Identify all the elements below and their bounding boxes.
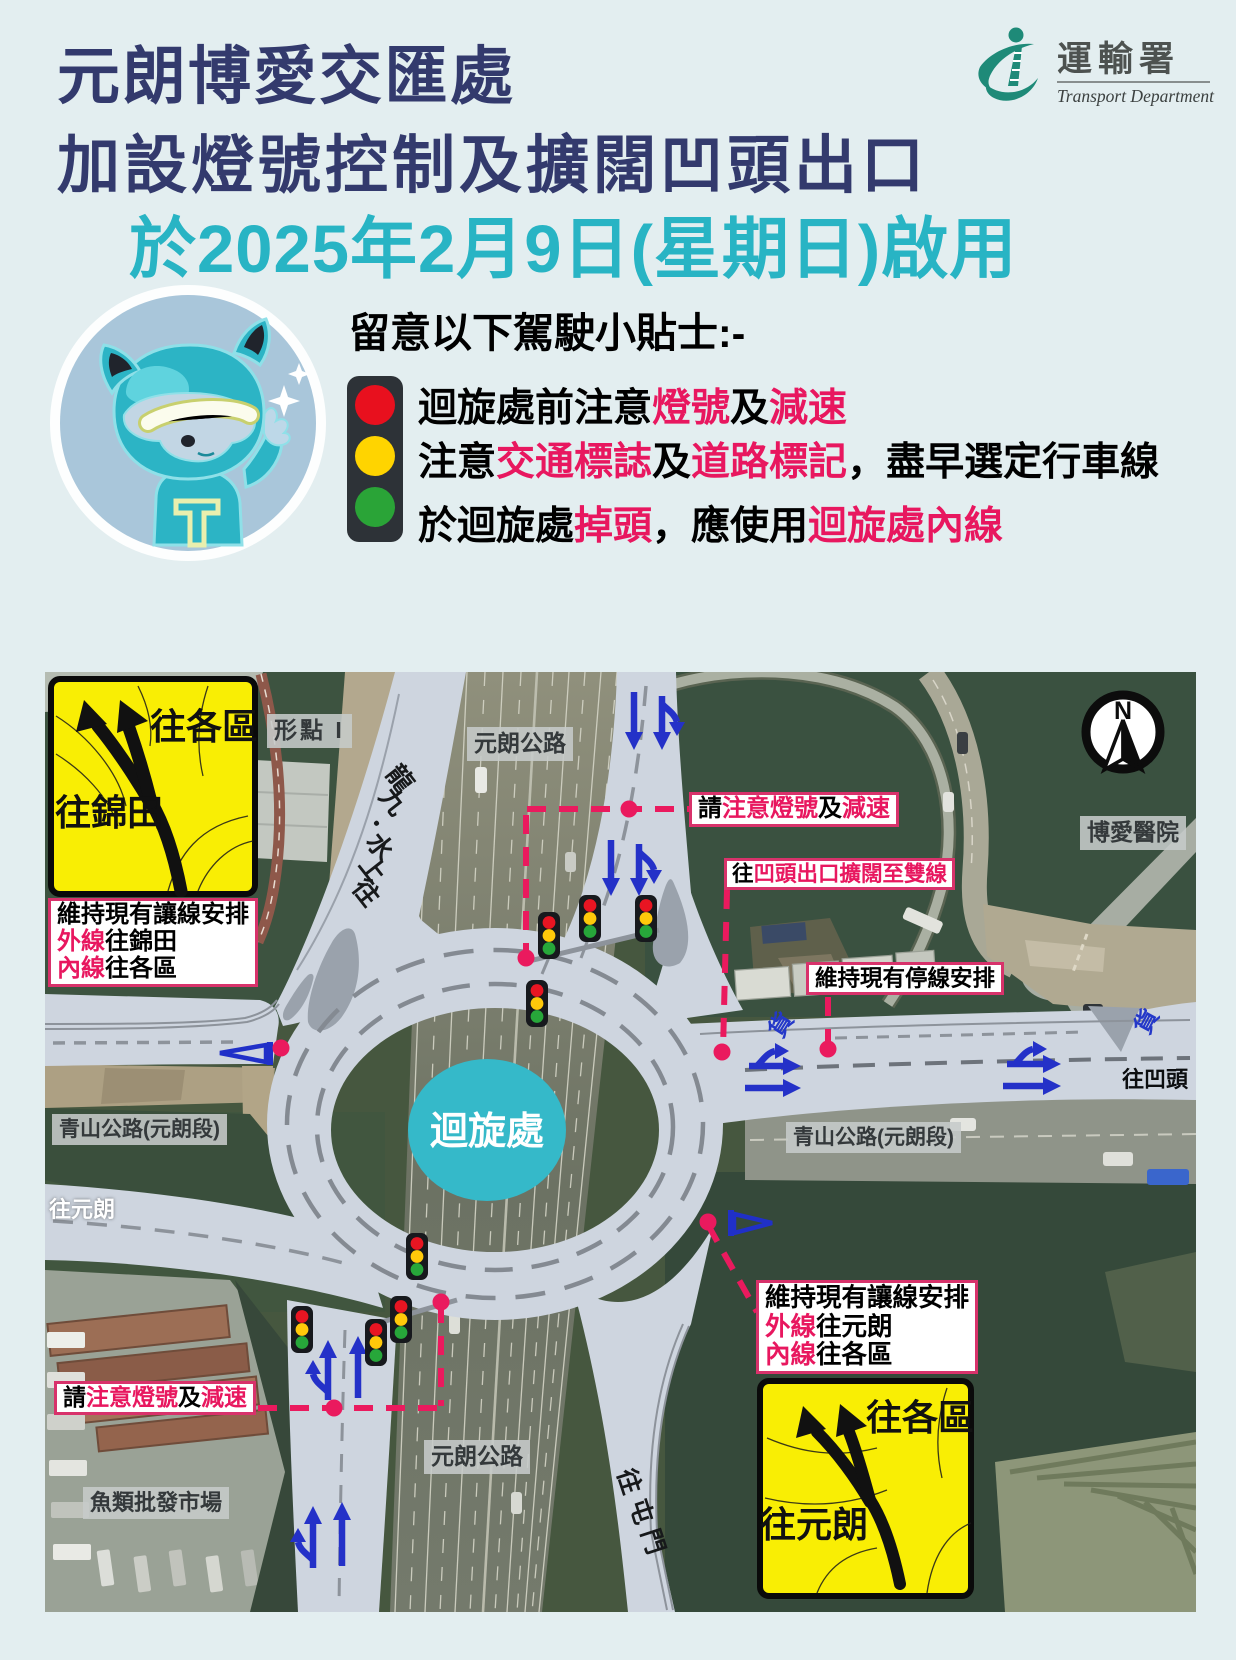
svg-text:運輸署: 運輸署 (1057, 40, 1180, 79)
svg-text:迴旋處: 迴旋處 (430, 1111, 544, 1153)
svg-text:Transport Department: Transport Department (1057, 86, 1215, 106)
